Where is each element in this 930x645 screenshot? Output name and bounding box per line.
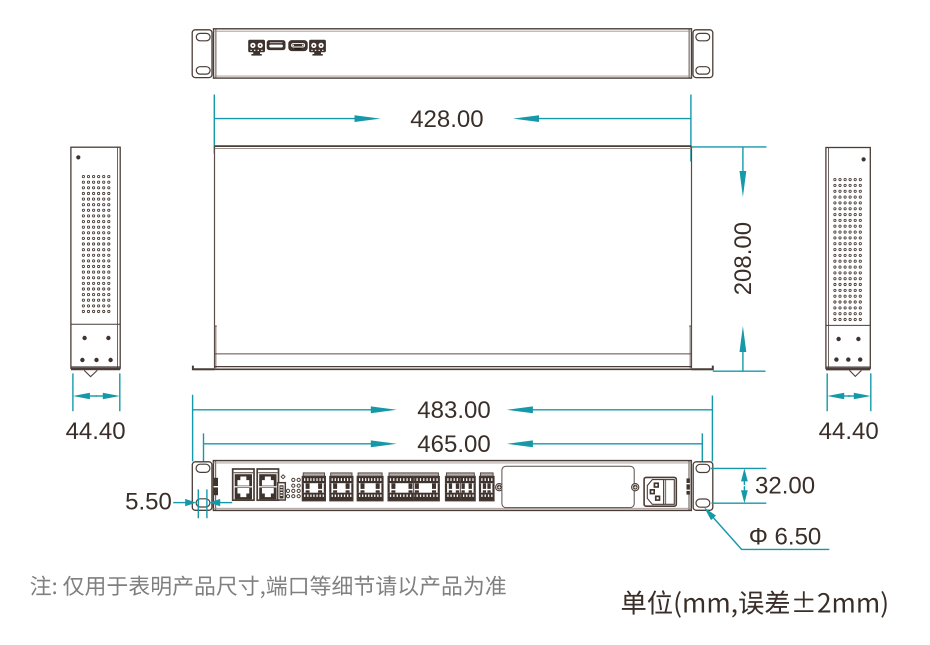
svg-text:5.50: 5.50 bbox=[125, 488, 172, 515]
svg-text:Φ 6.50: Φ 6.50 bbox=[749, 524, 822, 551]
svg-text:428.00: 428.00 bbox=[410, 106, 483, 133]
svg-text:208.00: 208.00 bbox=[730, 222, 757, 295]
svg-text:465.00: 465.00 bbox=[417, 431, 490, 458]
svg-text:44.40: 44.40 bbox=[66, 418, 126, 445]
svg-text:483.00: 483.00 bbox=[417, 397, 490, 424]
svg-text:44.40: 44.40 bbox=[819, 418, 879, 445]
svg-text:32.00: 32.00 bbox=[755, 473, 815, 500]
